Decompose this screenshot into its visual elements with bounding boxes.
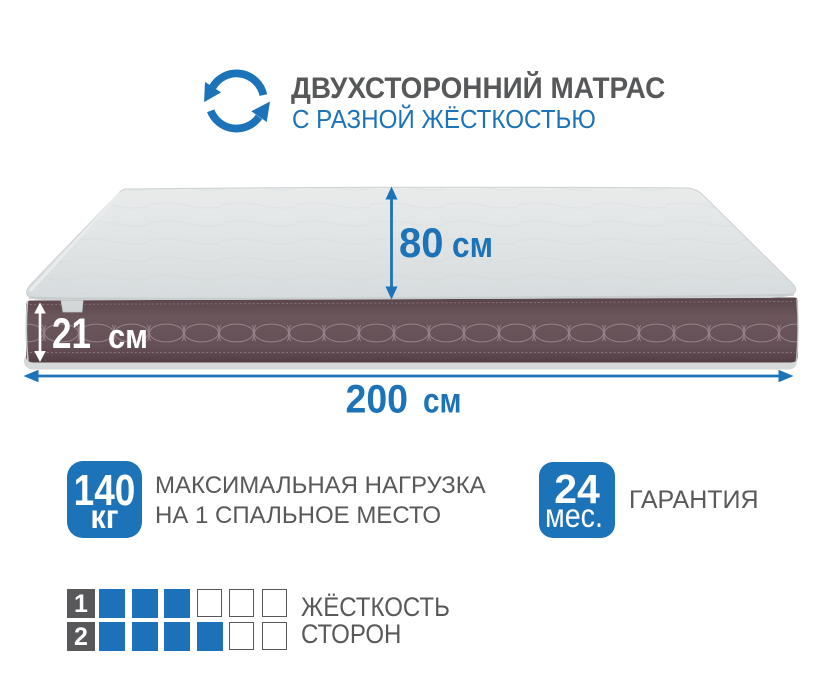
svg-text:см: см bbox=[452, 224, 493, 265]
svg-text:см: см bbox=[108, 318, 148, 356]
svg-text:80: 80 bbox=[399, 219, 444, 266]
svg-text:21: 21 bbox=[52, 310, 91, 358]
svg-text:см: см bbox=[423, 382, 462, 421]
svg-text:200: 200 bbox=[346, 378, 409, 422]
